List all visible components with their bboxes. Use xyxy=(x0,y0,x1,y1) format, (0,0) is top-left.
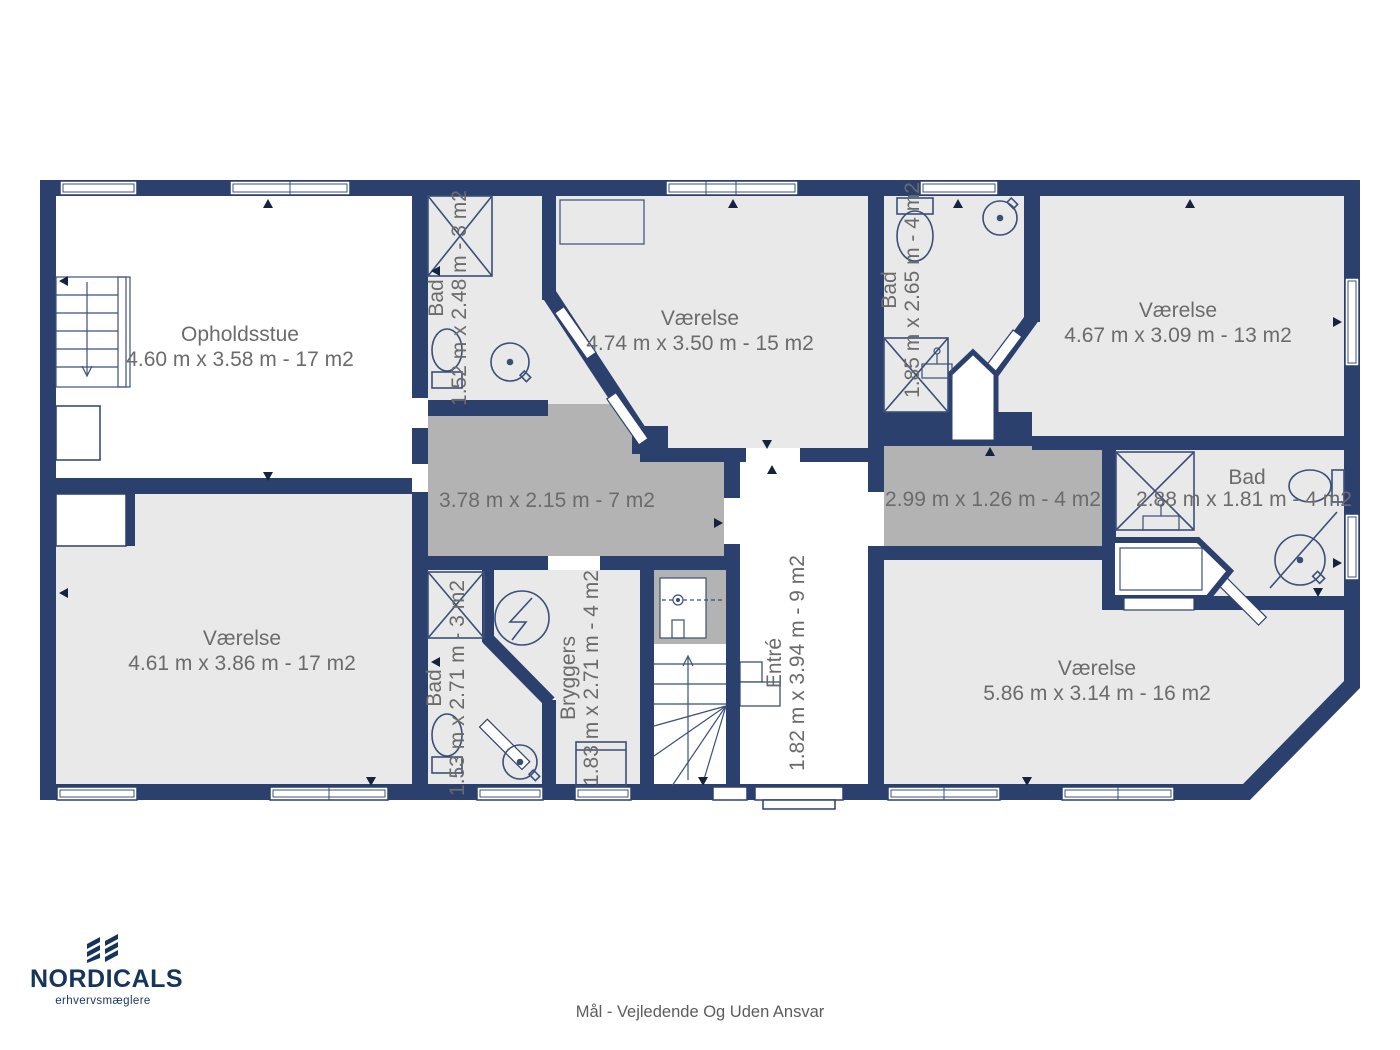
door-pentagon xyxy=(950,352,996,442)
window xyxy=(1345,514,1359,580)
door-opening xyxy=(746,448,800,462)
wall-bad-ne-east xyxy=(1024,196,1040,322)
room-dims: 4.67 m x 3.09 m - 13 m2 xyxy=(1064,324,1292,347)
room-label: Bad xyxy=(1228,466,1265,489)
wall-bad-nw-south xyxy=(428,400,548,416)
room-dims: 4.74 m x 3.50 m - 15 m2 xyxy=(586,332,814,355)
room-dims: 1.53 m x 2.71 m - 3 m2 xyxy=(446,580,469,796)
door-opening xyxy=(412,464,428,492)
wall-vaerelse-ne-south xyxy=(1032,436,1344,450)
wall-center-spine-lower xyxy=(868,546,884,786)
window xyxy=(1345,278,1359,366)
window xyxy=(57,787,137,800)
room-dims: 1.83 m x 2.71 m - 4 m2 xyxy=(580,570,603,786)
room-label: Opholdsstue xyxy=(181,323,299,346)
wall-stairwell-west xyxy=(640,570,654,786)
wall-opholdsstue-south xyxy=(56,478,412,494)
room-label: Værelse xyxy=(203,627,281,650)
disclaimer-text: Mål - Vejledende Og Uden Ansvar xyxy=(0,1003,1400,1022)
stairwell-area xyxy=(654,644,726,786)
logo-text: NORDICALS xyxy=(30,966,176,994)
room-dims: 4.60 m x 3.58 m - 17 m2 xyxy=(126,348,354,371)
door-opening xyxy=(548,556,600,570)
floorplan-page: Opholdsstue 4.60 m x 3.58 m - 17 m2 Bad … xyxy=(0,0,1400,1050)
window xyxy=(1062,787,1174,800)
window xyxy=(666,181,798,195)
window xyxy=(60,181,137,195)
room-dims: 2.88 m x 1.81 m - 4 m2 xyxy=(1136,488,1352,511)
room-label: Bryggers xyxy=(557,636,580,720)
floorplan-drawing: Opholdsstue 4.60 m x 3.58 m - 17 m2 Bad … xyxy=(0,0,1400,1050)
room-dims: 3.78 m x 2.15 m - 7 m2 xyxy=(439,489,655,512)
window xyxy=(575,787,631,800)
wall-stairwell-east xyxy=(726,570,740,786)
room-label: Bad xyxy=(425,279,448,316)
window xyxy=(230,181,350,195)
room-label: Værelse xyxy=(1058,657,1136,680)
wall-center-stub xyxy=(868,448,884,492)
wall-niche xyxy=(56,406,100,460)
room-label: Værelse xyxy=(661,307,739,330)
window xyxy=(920,181,998,195)
nordicals-logo-icon xyxy=(84,934,122,964)
window xyxy=(713,787,747,800)
closet-niche xyxy=(56,494,135,546)
room-dims: 2.99 m x 1.26 m - 4 m2 xyxy=(885,488,1101,511)
room-dims: 1.82 m x 3.94 m - 9 m2 xyxy=(786,555,809,771)
room-label: Bad xyxy=(878,271,901,308)
wall-bad-nw-east xyxy=(542,196,556,300)
wall-center-spine-upper xyxy=(868,196,884,448)
nordicals-logo: NORDICALS erhvervsmæglere xyxy=(30,934,176,1007)
room-label: Værelse xyxy=(1139,299,1217,322)
room-label: Entré xyxy=(763,638,786,688)
window xyxy=(888,787,1000,800)
entrance-door xyxy=(755,787,843,809)
window xyxy=(270,787,388,800)
door-opening xyxy=(412,398,428,428)
room-label: Bad xyxy=(423,669,446,706)
door-opening xyxy=(724,498,740,544)
window xyxy=(477,787,543,800)
wall-bryggers-west xyxy=(542,700,556,786)
room-dims: 4.61 m x 3.86 m - 17 m2 xyxy=(128,652,356,675)
room-dims: 5.86 m x 3.14 m - 16 m2 xyxy=(983,682,1211,705)
room-dims: 1.52 m x 2.48 m - 3 m2 xyxy=(448,190,471,406)
room-dims: 1.85 m x 2.65 m - 4 m2 xyxy=(901,182,924,398)
wall-hall-east-south xyxy=(884,546,1102,560)
